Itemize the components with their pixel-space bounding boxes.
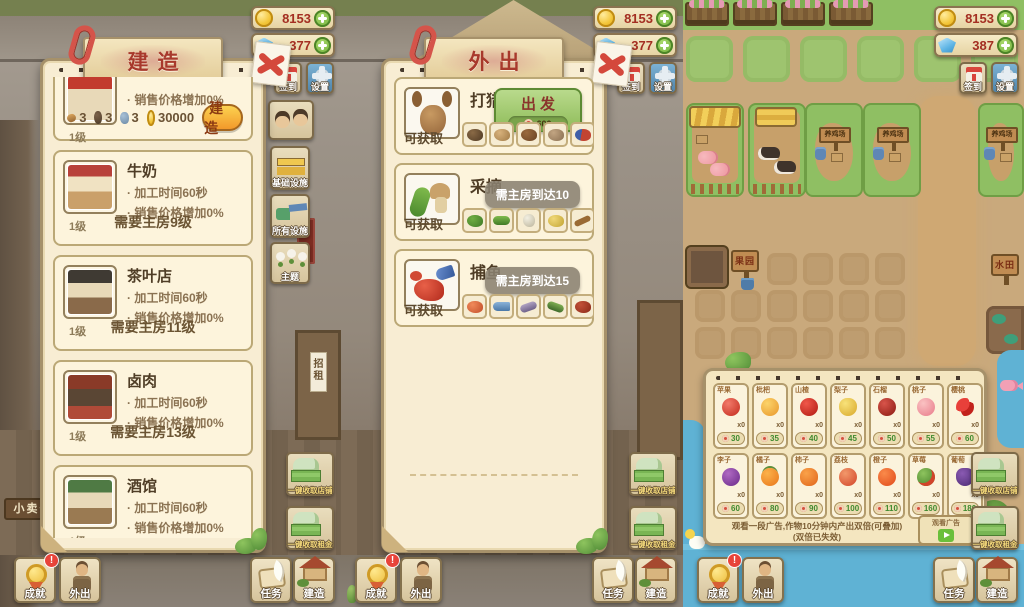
add-coins-button[interactable] bbox=[656, 10, 673, 27]
paddy-sign: 水田 bbox=[991, 254, 1019, 276]
locked-pen[interactable]: 养鸡场 bbox=[978, 103, 1024, 197]
fish-requirement-badge: 需主房到达15 bbox=[485, 267, 580, 294]
branch-loot-icon bbox=[570, 208, 594, 233]
item-line: · 加工时间60秒 bbox=[127, 499, 243, 516]
item-name: 茶叶店 bbox=[127, 265, 243, 286]
seed-sack bbox=[815, 147, 826, 160]
cost-row: 3 3 3 30000 建造 bbox=[67, 104, 243, 131]
tilled-plot[interactable] bbox=[687, 247, 727, 287]
gem-balance-bar: 387 bbox=[934, 33, 1018, 57]
item-name: 卤肉 bbox=[127, 370, 243, 391]
feed-basket bbox=[696, 135, 708, 144]
plum-icon bbox=[722, 468, 740, 486]
field-plot[interactable] bbox=[803, 253, 833, 285]
seed-card[interactable]: 山楂x040 bbox=[791, 383, 827, 449]
tasks-button[interactable]: 任务 bbox=[933, 557, 975, 603]
stitch-decor bbox=[716, 376, 974, 380]
close-button[interactable] bbox=[251, 41, 292, 87]
collect-rent-button[interactable]: 一键收取租金 bbox=[629, 506, 677, 550]
herb-loot-icon bbox=[462, 208, 487, 233]
crate bbox=[889, 153, 901, 162]
item-thumbnail bbox=[63, 370, 117, 424]
orange-icon bbox=[878, 468, 896, 486]
add-coins-button[interactable] bbox=[314, 10, 331, 27]
item-line: · 加工时间60秒 bbox=[127, 394, 243, 411]
stone-qty: 3 bbox=[132, 110, 139, 125]
loquat-icon bbox=[761, 398, 779, 416]
obtainable-label: 可获取 bbox=[404, 214, 443, 233]
settings-button[interactable]: 设置 bbox=[649, 62, 677, 94]
pomegranate-icon bbox=[878, 398, 896, 416]
signin-label: 签到 bbox=[957, 80, 989, 93]
dirt-path bbox=[918, 96, 976, 366]
build-button[interactable]: 建造 bbox=[293, 557, 335, 603]
money-icon bbox=[976, 524, 1006, 536]
medal-icon bbox=[26, 564, 47, 585]
money-icon bbox=[291, 470, 321, 482]
strawberry-icon bbox=[917, 468, 935, 486]
seed-select-panel: 苹果x030 枇杷x035 山楂x040 梨子x045 石榴x050 桃子x05… bbox=[703, 368, 987, 546]
tasks-button[interactable]: 任务 bbox=[592, 557, 634, 603]
collect-shops-label: 一键收取店铺 bbox=[284, 485, 336, 496]
eel-loot-icon bbox=[516, 294, 541, 319]
hare-loot-icon bbox=[543, 122, 568, 147]
settings-label: 设置 bbox=[304, 80, 336, 93]
collect-shops-label: 一键收取店铺 bbox=[969, 485, 1021, 496]
mandarin-icon bbox=[761, 468, 779, 486]
medal-icon bbox=[709, 564, 730, 585]
seed-card[interactable]: 李子x060 bbox=[713, 453, 749, 519]
stall-decor bbox=[637, 300, 683, 460]
seed-card[interactable]: 橘子x080 bbox=[752, 453, 788, 519]
achievement-button[interactable]: ! 成就 bbox=[697, 557, 739, 603]
portrait-icon bbox=[275, 111, 290, 128]
tasks-label: 任务 bbox=[589, 586, 637, 601]
pen-sign: 养鸡场 bbox=[877, 127, 909, 143]
shrimp-loot-icon bbox=[462, 294, 487, 319]
egg-loot-icon bbox=[516, 208, 541, 233]
outing-dialog: 外出 打猎 出发 600 可获取 bbox=[381, 58, 607, 553]
coin-amount: 8153 bbox=[273, 11, 314, 26]
collect-rent-label: 一键收取租金 bbox=[284, 539, 336, 550]
field-plot[interactable] bbox=[695, 327, 725, 359]
house-icon bbox=[645, 567, 669, 581]
fish-loot-icon bbox=[489, 294, 514, 319]
outing-label: 外出 bbox=[397, 586, 445, 601]
achievement-button[interactable]: ! 成就 bbox=[14, 557, 56, 603]
panel-build: 小卖部 招租 8153 377 签到 设置 基础设施 bbox=[0, 0, 341, 607]
ginger-loot-icon bbox=[543, 208, 568, 233]
coin-icon bbox=[255, 9, 273, 27]
add-gems-button[interactable] bbox=[997, 37, 1014, 54]
coin-icon bbox=[147, 110, 155, 126]
item-line: · 加工时间60秒 bbox=[127, 184, 243, 201]
ad-bonus-text: 观看一段广告,作物10分钟内产出双倍(可叠加) (双倍已失效) bbox=[714, 521, 920, 543]
money-icon bbox=[976, 470, 1006, 482]
achievement-button[interactable]: ! 成就 bbox=[355, 557, 397, 603]
boar-loot-icon bbox=[516, 122, 541, 147]
obtainable-label: 可获取 bbox=[404, 300, 443, 319]
clock-icon bbox=[722, 435, 729, 442]
seed-card[interactable]: 草莓x0160 bbox=[908, 453, 944, 519]
coin-qty: 30000 bbox=[158, 110, 194, 125]
truck-bed-icon bbox=[289, 203, 308, 212]
panel-farm: 养鸡场 养鸡场 养鸡场 果园 bbox=[683, 0, 1024, 607]
ore-icon bbox=[94, 111, 102, 124]
flower-icon bbox=[298, 252, 307, 261]
item-thumbnail bbox=[63, 160, 117, 214]
truck-icon bbox=[276, 208, 290, 220]
bear-loot-icon bbox=[462, 122, 487, 147]
hunt-loot-row bbox=[462, 122, 594, 147]
cucumber-loot-icon bbox=[489, 208, 514, 233]
outing-label: 外出 bbox=[739, 586, 787, 601]
field-plot[interactable] bbox=[803, 290, 833, 322]
planter-box bbox=[685, 2, 729, 26]
obtainable-label: 可获取 bbox=[404, 128, 443, 147]
achievement-label: 成就 bbox=[694, 586, 742, 601]
cherry-icon bbox=[956, 398, 974, 416]
notification-badge: ! bbox=[44, 553, 59, 568]
money-icon bbox=[291, 524, 321, 536]
flower-icon bbox=[287, 249, 296, 258]
add-coins-button[interactable] bbox=[997, 10, 1014, 27]
pen-sign: 养鸡场 bbox=[986, 127, 1018, 143]
signin-button[interactable]: 签到 bbox=[959, 62, 987, 94]
seed-sack bbox=[984, 147, 995, 160]
settings-label: 设置 bbox=[989, 80, 1021, 93]
portraits-button[interactable] bbox=[268, 100, 314, 140]
depart-label: 出发 bbox=[496, 93, 580, 114]
gather-requirement-badge: 需主房到达10 bbox=[485, 181, 580, 208]
furniture-icon bbox=[277, 158, 305, 166]
cow-pen[interactable] bbox=[748, 103, 806, 197]
notification-badge: ! bbox=[385, 553, 400, 568]
item-requirement: 需要主房11级 bbox=[55, 317, 251, 337]
coin-amount: 8153 bbox=[956, 11, 997, 26]
build-item-teashop[interactable]: 茶叶店 · 加工时间60秒 · 销售价格增加0% 1级 需要主房11级 bbox=[53, 255, 253, 351]
panel-outing: 8153 377 签到 设置 一键收取店铺 一键收取租金 bbox=[341, 0, 683, 607]
notification-badge: ! bbox=[727, 553, 742, 568]
infrastructure-button[interactable]: 基础设施 bbox=[270, 146, 310, 190]
build-dialog: 建造 · 销售价格增加0% 1级 3 3 3 3000 bbox=[40, 58, 266, 553]
medal-icon bbox=[367, 564, 388, 585]
build-item-button[interactable]: 建造 bbox=[202, 104, 243, 131]
achievement-label: 成就 bbox=[352, 586, 400, 601]
watch-ad-button[interactable]: 观看广告 bbox=[918, 515, 974, 545]
settings-label: 设置 bbox=[647, 80, 679, 93]
orchard-sign: 果园 bbox=[731, 250, 759, 272]
gem-amount: 387 bbox=[956, 38, 997, 53]
seed-card[interactable]: 橙子x0110 bbox=[869, 453, 905, 519]
ad-bonus-line2: (双倍已失效) bbox=[714, 532, 920, 543]
field-plot[interactable] bbox=[731, 290, 761, 322]
seed-card[interactable]: 梨子x045 bbox=[830, 383, 866, 449]
add-gems-button[interactable] bbox=[314, 37, 331, 54]
tasks-label: 任务 bbox=[930, 586, 978, 601]
build-dialog-title: 建造 bbox=[119, 46, 188, 76]
seed-cards-row-2: 李子x060 橘子x080 柿子x090 荔枝x0100 橙子x0110 草莓x… bbox=[713, 453, 983, 519]
water-bucket bbox=[741, 278, 754, 290]
item-requirement: 需要主房13级 bbox=[55, 422, 251, 442]
hawthorn-icon bbox=[800, 398, 818, 416]
collect-shops-label: 一键收取店铺 bbox=[627, 485, 679, 496]
bush bbox=[1004, 334, 1018, 344]
collect-rent-button[interactable]: 一键收取租金 bbox=[286, 506, 334, 550]
item-line: · 销售价格增加0% bbox=[127, 519, 243, 536]
outing-button[interactable]: 外出 bbox=[742, 557, 784, 603]
house-icon bbox=[986, 567, 1010, 581]
seed-card[interactable]: 枇杷x035 bbox=[752, 383, 788, 449]
seed-card[interactable]: 荔枝x0100 bbox=[830, 453, 866, 519]
collect-rent-label: 一键收取租金 bbox=[627, 539, 679, 550]
lychee-icon bbox=[839, 468, 857, 486]
fence bbox=[753, 184, 801, 194]
field-plot[interactable] bbox=[803, 327, 833, 359]
build-item-milk[interactable]: 牛奶 · 加工时间60秒 · 销售价格增加0% 1级 需要主房9级 bbox=[53, 150, 253, 246]
item-requirement: 需要主房9级 bbox=[55, 212, 251, 232]
outing-fish-row[interactable]: 捕鱼 需主房到达15 可获取 bbox=[394, 249, 594, 327]
settings-button[interactable]: 设置 bbox=[306, 62, 334, 94]
pheasant-loot-icon bbox=[570, 122, 594, 147]
seed-card[interactable]: 石榴x050 bbox=[869, 383, 905, 449]
field-plot[interactable] bbox=[767, 327, 797, 359]
grass-tile bbox=[743, 36, 790, 82]
add-gems-button[interactable] bbox=[656, 37, 673, 54]
coin-icon bbox=[938, 9, 956, 27]
house-icon bbox=[303, 567, 327, 581]
field-plot[interactable] bbox=[767, 253, 797, 285]
outing-dialog-title: 外出 bbox=[460, 46, 529, 76]
build-label: 建造 bbox=[632, 586, 680, 601]
build-list: · 销售价格增加0% 1级 3 3 3 30000 建造 bbox=[53, 77, 253, 538]
item-thumbnail bbox=[63, 265, 117, 319]
deer-loot-icon bbox=[489, 122, 514, 147]
outing-button[interactable]: 外出 bbox=[59, 557, 101, 603]
fence bbox=[691, 184, 739, 194]
grass-tile bbox=[800, 36, 847, 82]
coin-balance-bar: 8153 bbox=[251, 6, 335, 30]
item-thumbnail bbox=[63, 475, 117, 529]
dashed-divider bbox=[410, 474, 578, 476]
item-level: 1级 bbox=[69, 533, 86, 538]
pen-sign: 养鸡场 bbox=[819, 127, 851, 143]
coin-amount: 8153 bbox=[615, 11, 656, 26]
build-item-tavern[interactable]: 酒馆 · 加工时间60秒 · 销售价格增加0% 1级 bbox=[53, 465, 253, 538]
coin-icon bbox=[597, 9, 615, 27]
theme-button[interactable]: 主题 bbox=[270, 242, 310, 284]
bush bbox=[992, 314, 1006, 324]
field-plot[interactable] bbox=[695, 290, 725, 322]
grass-tile bbox=[857, 36, 904, 82]
persimmon-icon bbox=[800, 468, 818, 486]
peach-icon bbox=[917, 398, 935, 416]
field-plot[interactable] bbox=[875, 253, 905, 285]
field-plot[interactable] bbox=[875, 327, 905, 359]
hay-shelter bbox=[689, 106, 741, 128]
planter-box bbox=[781, 2, 825, 26]
gem-icon bbox=[938, 38, 956, 53]
coin-balance-bar: 8153 bbox=[593, 6, 677, 30]
build-button[interactable]: 建造 bbox=[635, 557, 677, 603]
planter-box bbox=[829, 2, 873, 26]
water-right bbox=[997, 350, 1024, 448]
seed-cards-row-1: 苹果x030 枇杷x035 山楂x040 梨子x045 石榴x050 桃子x05… bbox=[713, 383, 983, 449]
build-label: 建造 bbox=[290, 586, 338, 601]
cow bbox=[774, 161, 796, 174]
green-eel-loot-icon bbox=[543, 294, 568, 319]
fish-loot-row bbox=[462, 294, 594, 319]
item-name: 牛奶 bbox=[127, 160, 243, 181]
tasks-button[interactable]: 任务 bbox=[250, 557, 292, 603]
flower-icon bbox=[276, 252, 285, 261]
tasks-label: 任务 bbox=[247, 586, 295, 601]
outing-label: 外出 bbox=[56, 586, 104, 601]
achievement-label: 成就 bbox=[11, 586, 59, 601]
planter-box bbox=[733, 2, 777, 26]
outing-list: 打猎 出发 600 可获取 bbox=[394, 77, 594, 538]
play-icon bbox=[938, 529, 954, 542]
watch-ad-label: 观看广告 bbox=[920, 518, 972, 528]
close-button[interactable] bbox=[592, 41, 633, 87]
wood-icon bbox=[66, 112, 77, 122]
pig-pen[interactable] bbox=[686, 103, 744, 197]
pig bbox=[710, 163, 730, 176]
hay-bale bbox=[755, 107, 797, 127]
infrastructure-label: 基础设施 bbox=[268, 176, 312, 189]
build-label: 建造 bbox=[973, 586, 1021, 601]
build-item-partial: · 销售价格增加0% 1级 3 3 3 30000 建造 bbox=[53, 77, 253, 141]
grass-tile bbox=[686, 36, 733, 82]
crate bbox=[1000, 153, 1012, 162]
crate bbox=[831, 153, 843, 162]
ad-bonus-line1: 观看一段广告,作物10分钟内产出双倍(可叠加) bbox=[714, 521, 920, 532]
field-plot[interactable] bbox=[839, 253, 869, 285]
apple-icon bbox=[722, 398, 740, 416]
outing-button[interactable]: 外出 bbox=[400, 557, 442, 603]
gather-loot-row bbox=[462, 208, 594, 233]
cow bbox=[758, 147, 780, 160]
theme-label: 主题 bbox=[268, 270, 312, 283]
pear-icon bbox=[839, 398, 857, 416]
rent-banner: 招租 bbox=[310, 352, 327, 392]
collect-shops-button[interactable]: 一键收取店铺 bbox=[629, 452, 677, 496]
money-icon bbox=[634, 470, 664, 482]
item-name: 酒馆 bbox=[127, 475, 243, 496]
portrait-icon bbox=[293, 109, 308, 126]
stone-icon bbox=[120, 112, 128, 124]
pink-fish bbox=[1000, 380, 1018, 391]
collect-shops-button[interactable]: 一键收取店铺 bbox=[286, 452, 334, 496]
settings-button[interactable]: 设置 bbox=[991, 62, 1019, 94]
game-screens: 小卖部 招租 8153 377 签到 设置 基础设施 bbox=[0, 0, 1024, 607]
ore-qty: 3 bbox=[105, 110, 112, 125]
coin-balance-bar: 8153 bbox=[934, 6, 1018, 30]
locked-pen[interactable]: 养鸡场 bbox=[805, 103, 863, 197]
collect-shops-button[interactable]: 一键收取店铺 bbox=[971, 452, 1019, 496]
money-icon bbox=[634, 524, 664, 536]
build-item-braised-meat[interactable]: 卤肉 · 加工时间60秒 · 销售价格增加0% 1级 需要主房13级 bbox=[53, 360, 253, 456]
locked-pen[interactable]: 养鸡场 bbox=[863, 103, 921, 197]
seed-card[interactable]: 桃子x055 bbox=[908, 383, 944, 449]
seed-card[interactable]: 樱桃x060 bbox=[947, 383, 983, 449]
field-plot[interactable] bbox=[875, 290, 905, 322]
seed-card[interactable]: 苹果x030 bbox=[713, 383, 749, 449]
seed-card[interactable]: 柿子x090 bbox=[791, 453, 827, 519]
collect-rent-label: 一键收取租金 bbox=[969, 539, 1021, 550]
outing-hunt-row[interactable]: 打猎 出发 600 可获取 bbox=[394, 77, 594, 155]
field-plot[interactable] bbox=[839, 327, 869, 359]
field-plot[interactable] bbox=[839, 290, 869, 322]
all-facilities-label: 所有设施 bbox=[268, 224, 312, 237]
outing-gather-row[interactable]: 采摘 需主房到达10 可获取 bbox=[394, 163, 594, 241]
collect-rent-button[interactable]: 一键收取租金 bbox=[971, 506, 1019, 550]
all-facilities-button[interactable]: 所有设施 bbox=[270, 194, 310, 238]
field-plot[interactable] bbox=[767, 290, 797, 322]
seed-sack bbox=[873, 147, 884, 160]
dirt-patch bbox=[986, 306, 1024, 354]
wood-qty: 3 bbox=[79, 110, 86, 125]
build-button[interactable]: 建造 bbox=[976, 557, 1018, 603]
item-line: · 加工时间60秒 bbox=[127, 289, 243, 306]
item-level: 1级 bbox=[69, 129, 86, 145]
crayfish-loot-icon bbox=[570, 294, 594, 319]
